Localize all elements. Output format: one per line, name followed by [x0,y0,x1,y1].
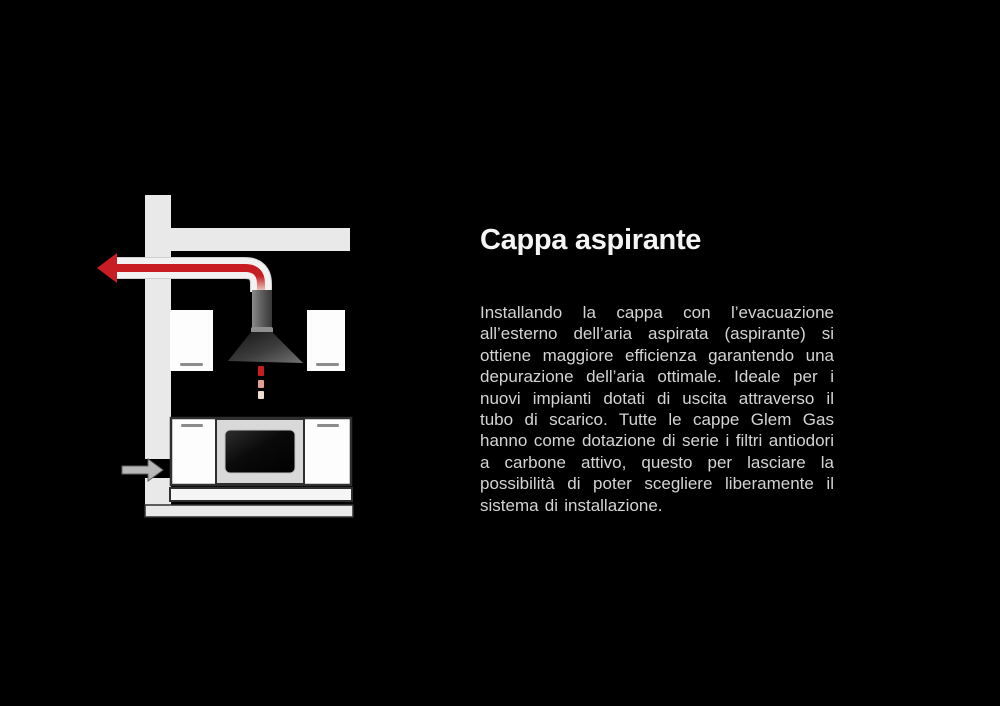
upper-cabinet-left [170,310,213,371]
cabinet-handle [180,363,203,366]
extractor-hood [228,290,303,363]
upper-cabinet-right [307,310,345,371]
door-handle-right [317,424,339,427]
body-paragraph: Installando la cappa con l’evacuazione a… [480,302,834,516]
door-handle-left [181,424,203,427]
cabinet-handle [316,363,339,366]
plinth [170,488,352,501]
exhaust-flow-line [112,268,261,291]
text-panel: Cappa aspirante Installando la cappa con… [480,224,834,516]
exhaust-duct [97,253,266,292]
wall-column-upper [145,195,171,459]
exhaust-arrow-icon [97,253,117,283]
ceiling-beam [170,228,350,251]
hood-chimney [252,290,272,332]
hood-cone [228,332,303,363]
base-unit [170,418,352,501]
oven-door-glass [225,430,295,473]
page-title: Cappa aspirante [480,224,834,256]
floor-strip [145,505,353,517]
intake-arrow-icon [122,459,163,481]
oven [216,419,304,484]
slide: Cappa aspirante Installando la cappa con… [0,0,1000,706]
suction-dashes [258,366,264,399]
